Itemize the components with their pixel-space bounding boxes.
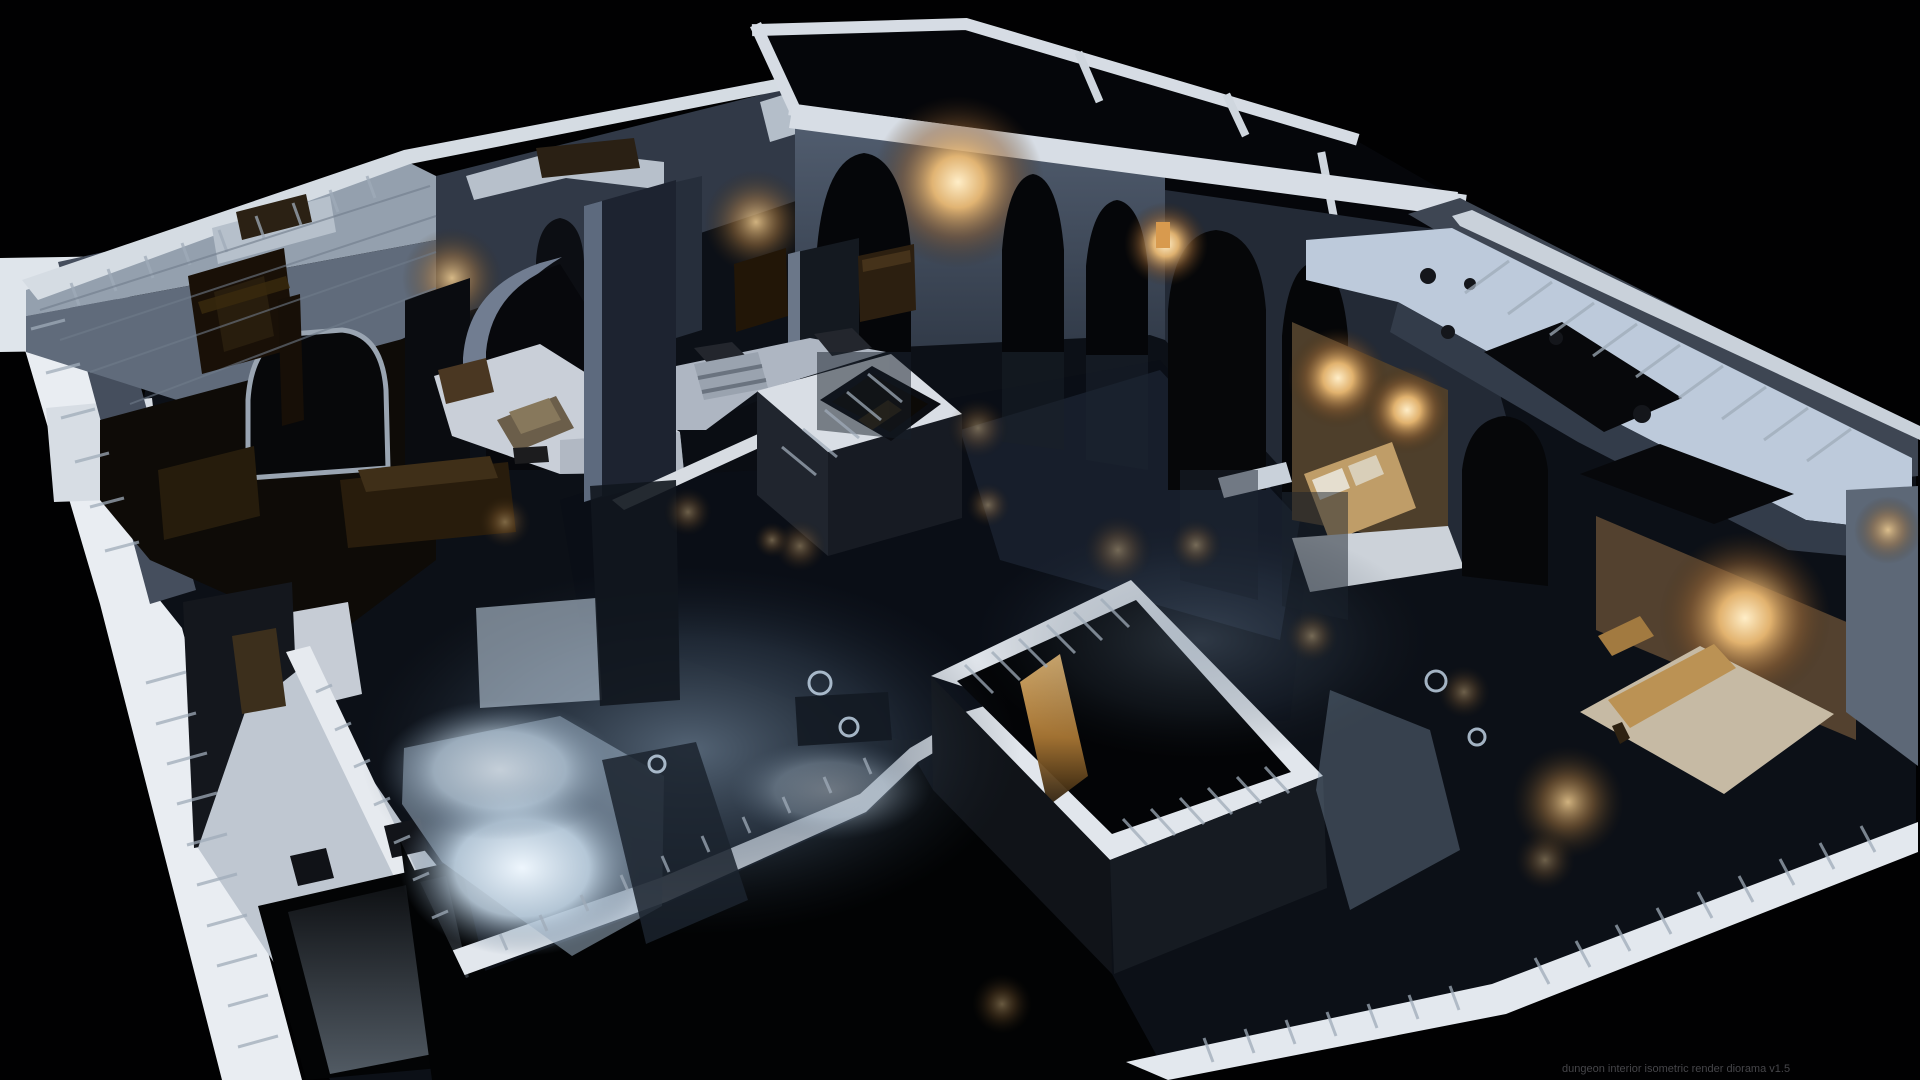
- svg-text:dungeon interior isometric ren: dungeon interior isometric render dioram…: [1562, 1063, 1790, 1075]
